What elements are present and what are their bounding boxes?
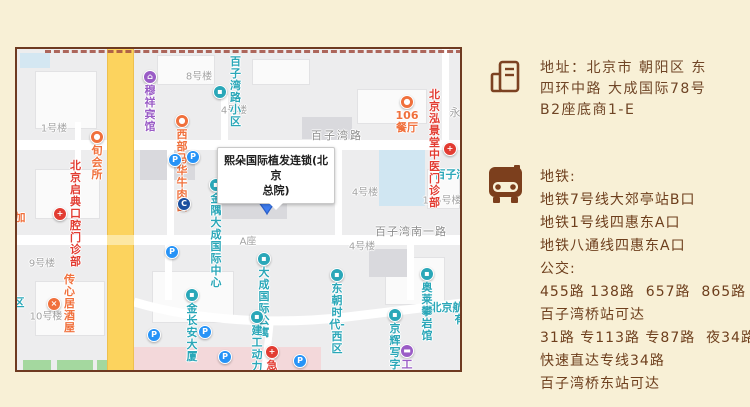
leisure-icon: ● — [90, 130, 104, 144]
restaurant-icon: ● — [175, 114, 189, 128]
building-poi-icon: ▪ — [330, 268, 344, 282]
transit-line: 31路 专113路 专87路 夜34路 — [540, 327, 750, 350]
transit-line: 快速直达专线34路 — [540, 350, 750, 373]
page: ⌂穆祥宾馆▪百子湾路小区●106餐厅●西部马华牛肉面●旬会所+北京泓景堂 中医门… — [0, 0, 750, 407]
emergency-icon: + — [265, 345, 279, 359]
building-label: 永 — [450, 104, 461, 120]
chuanxinju-izakaya-label: 传心居酒屋 — [64, 274, 75, 334]
jinyu-dacheng-center-label: 金隅大成 国际中心 — [211, 193, 222, 289]
poi-label-cut: 区 — [15, 294, 25, 310]
jinchangan-tower-label: 金长安大厦 — [187, 303, 198, 363]
transit-line: 地铁1号线四惠东A口 — [540, 212, 750, 235]
address-line: 地址：北京市 朝阳区 东 — [540, 58, 707, 79]
emergency-poi-label: 急诊 — [267, 360, 278, 372]
road-yellow-main — [107, 49, 134, 370]
building-label: A座 — [240, 233, 257, 248]
building-poi-icon: ▪ — [388, 308, 402, 322]
transit-line: 公交: — [540, 258, 750, 281]
parking-icon: P — [147, 328, 161, 342]
aolai-climbing-hall-label: 奥莱攀岩馆 — [422, 282, 433, 342]
restaurant-icon: ● — [400, 95, 414, 109]
map-callout[interactable]: 熙朵国际植发连锁(北京 总院) — [217, 147, 335, 204]
gongyou-market-label: 工友超市 — [402, 359, 413, 372]
road-label: 百子湾路 — [311, 127, 363, 143]
baiziwanlu-xiaoqu-label: 百子湾路小区 — [230, 56, 241, 128]
parking-icon: P — [198, 325, 212, 339]
address-line: B2座底商1-E — [540, 100, 707, 121]
restaurant-106-label: 106餐厅 — [396, 110, 419, 134]
poi-label-cut: 加 — [15, 209, 26, 225]
road-label: 百子湾南一路 — [375, 223, 447, 239]
transit-line: 地铁八通线四惠东A口 — [540, 235, 750, 258]
parking-icon: P — [218, 350, 232, 364]
xun-club-label: 旬会所 — [92, 145, 103, 181]
dongchao-times-west-label: 东朝时代-西区 — [329, 283, 345, 355]
bus-icon — [484, 164, 528, 206]
parking-icon: P — [293, 354, 307, 368]
hongjingtang-clinic-label: 北京泓景堂 中医门诊部 — [429, 89, 440, 209]
hospital-icon: + — [443, 142, 457, 156]
callout-line2: 总院) — [220, 183, 332, 198]
building-label: 4号楼 — [349, 238, 375, 253]
building-poi-icon: ▪ — [257, 252, 271, 266]
poi-label-cut: 有 — [455, 311, 463, 327]
transit-line: 百子湾桥东站可达 — [540, 373, 750, 396]
shop-icon: ▬ — [400, 344, 414, 358]
building-poi-icon: ▪ — [185, 288, 199, 302]
parking-icon: P — [168, 153, 182, 167]
map-panel[interactable]: ⌂穆祥宾馆▪百子湾路小区●106餐厅●西部马华牛肉面●旬会所+北京泓景堂 中医门… — [15, 47, 462, 372]
transit-line: 455路 138路 657路 865路 — [540, 281, 750, 304]
transit-text: 地铁:地铁7号线大郊亭站B口地铁1号线四惠东A口地铁八通线四惠东A口公交:455… — [540, 166, 750, 396]
hotel-icon: ⌂ — [143, 70, 157, 84]
sport-icon: ▪ — [420, 267, 434, 281]
qidian-dental-clinic-label: 北京启典 口腔门诊部 — [70, 160, 81, 268]
building-address-icon — [488, 57, 526, 97]
hospital-icon: + — [53, 207, 67, 221]
parking-icon: P — [186, 150, 200, 164]
jinghui-office-label: 京辉写字楼 — [390, 323, 401, 372]
jianggong-dongliyuan-label: 建工动力苑 — [252, 325, 263, 372]
address-text: 地址：北京市 朝阳区 东四环中路 大成国际78号B2座底商1-E — [540, 58, 707, 121]
railway-dashed-line — [45, 50, 462, 53]
building-label: 4号楼 — [352, 184, 378, 199]
callout-line1: 熙朵国际植发连锁(北京 — [220, 153, 332, 183]
address-line: 四环中路 大成国际78号 — [540, 79, 707, 100]
transit-line: 地铁: — [540, 166, 750, 189]
building-label: 9号楼 — [29, 255, 55, 270]
transit-line: 百子湾桥站可达 — [540, 304, 750, 327]
parking-icon: P — [165, 245, 179, 259]
building-label: 8号楼 — [186, 68, 212, 83]
info-panel: 地址：北京市 朝阳区 东四环中路 大成国际78号B2座底商1-E 地铁:地铁7号… — [480, 0, 750, 407]
road-yellow-crossing — [107, 235, 134, 245]
restaurant-icon: × — [47, 297, 61, 311]
building-label: 1号楼 — [41, 120, 67, 135]
transit-line: 地铁7号线大郊亭站B口 — [540, 189, 750, 212]
muxiang-hotel-label: 穆祥宾馆 — [145, 85, 156, 133]
bank-icon: C — [177, 197, 191, 211]
residence-icon: ▪ — [213, 85, 227, 99]
building-poi-icon: ▪ — [250, 310, 264, 324]
